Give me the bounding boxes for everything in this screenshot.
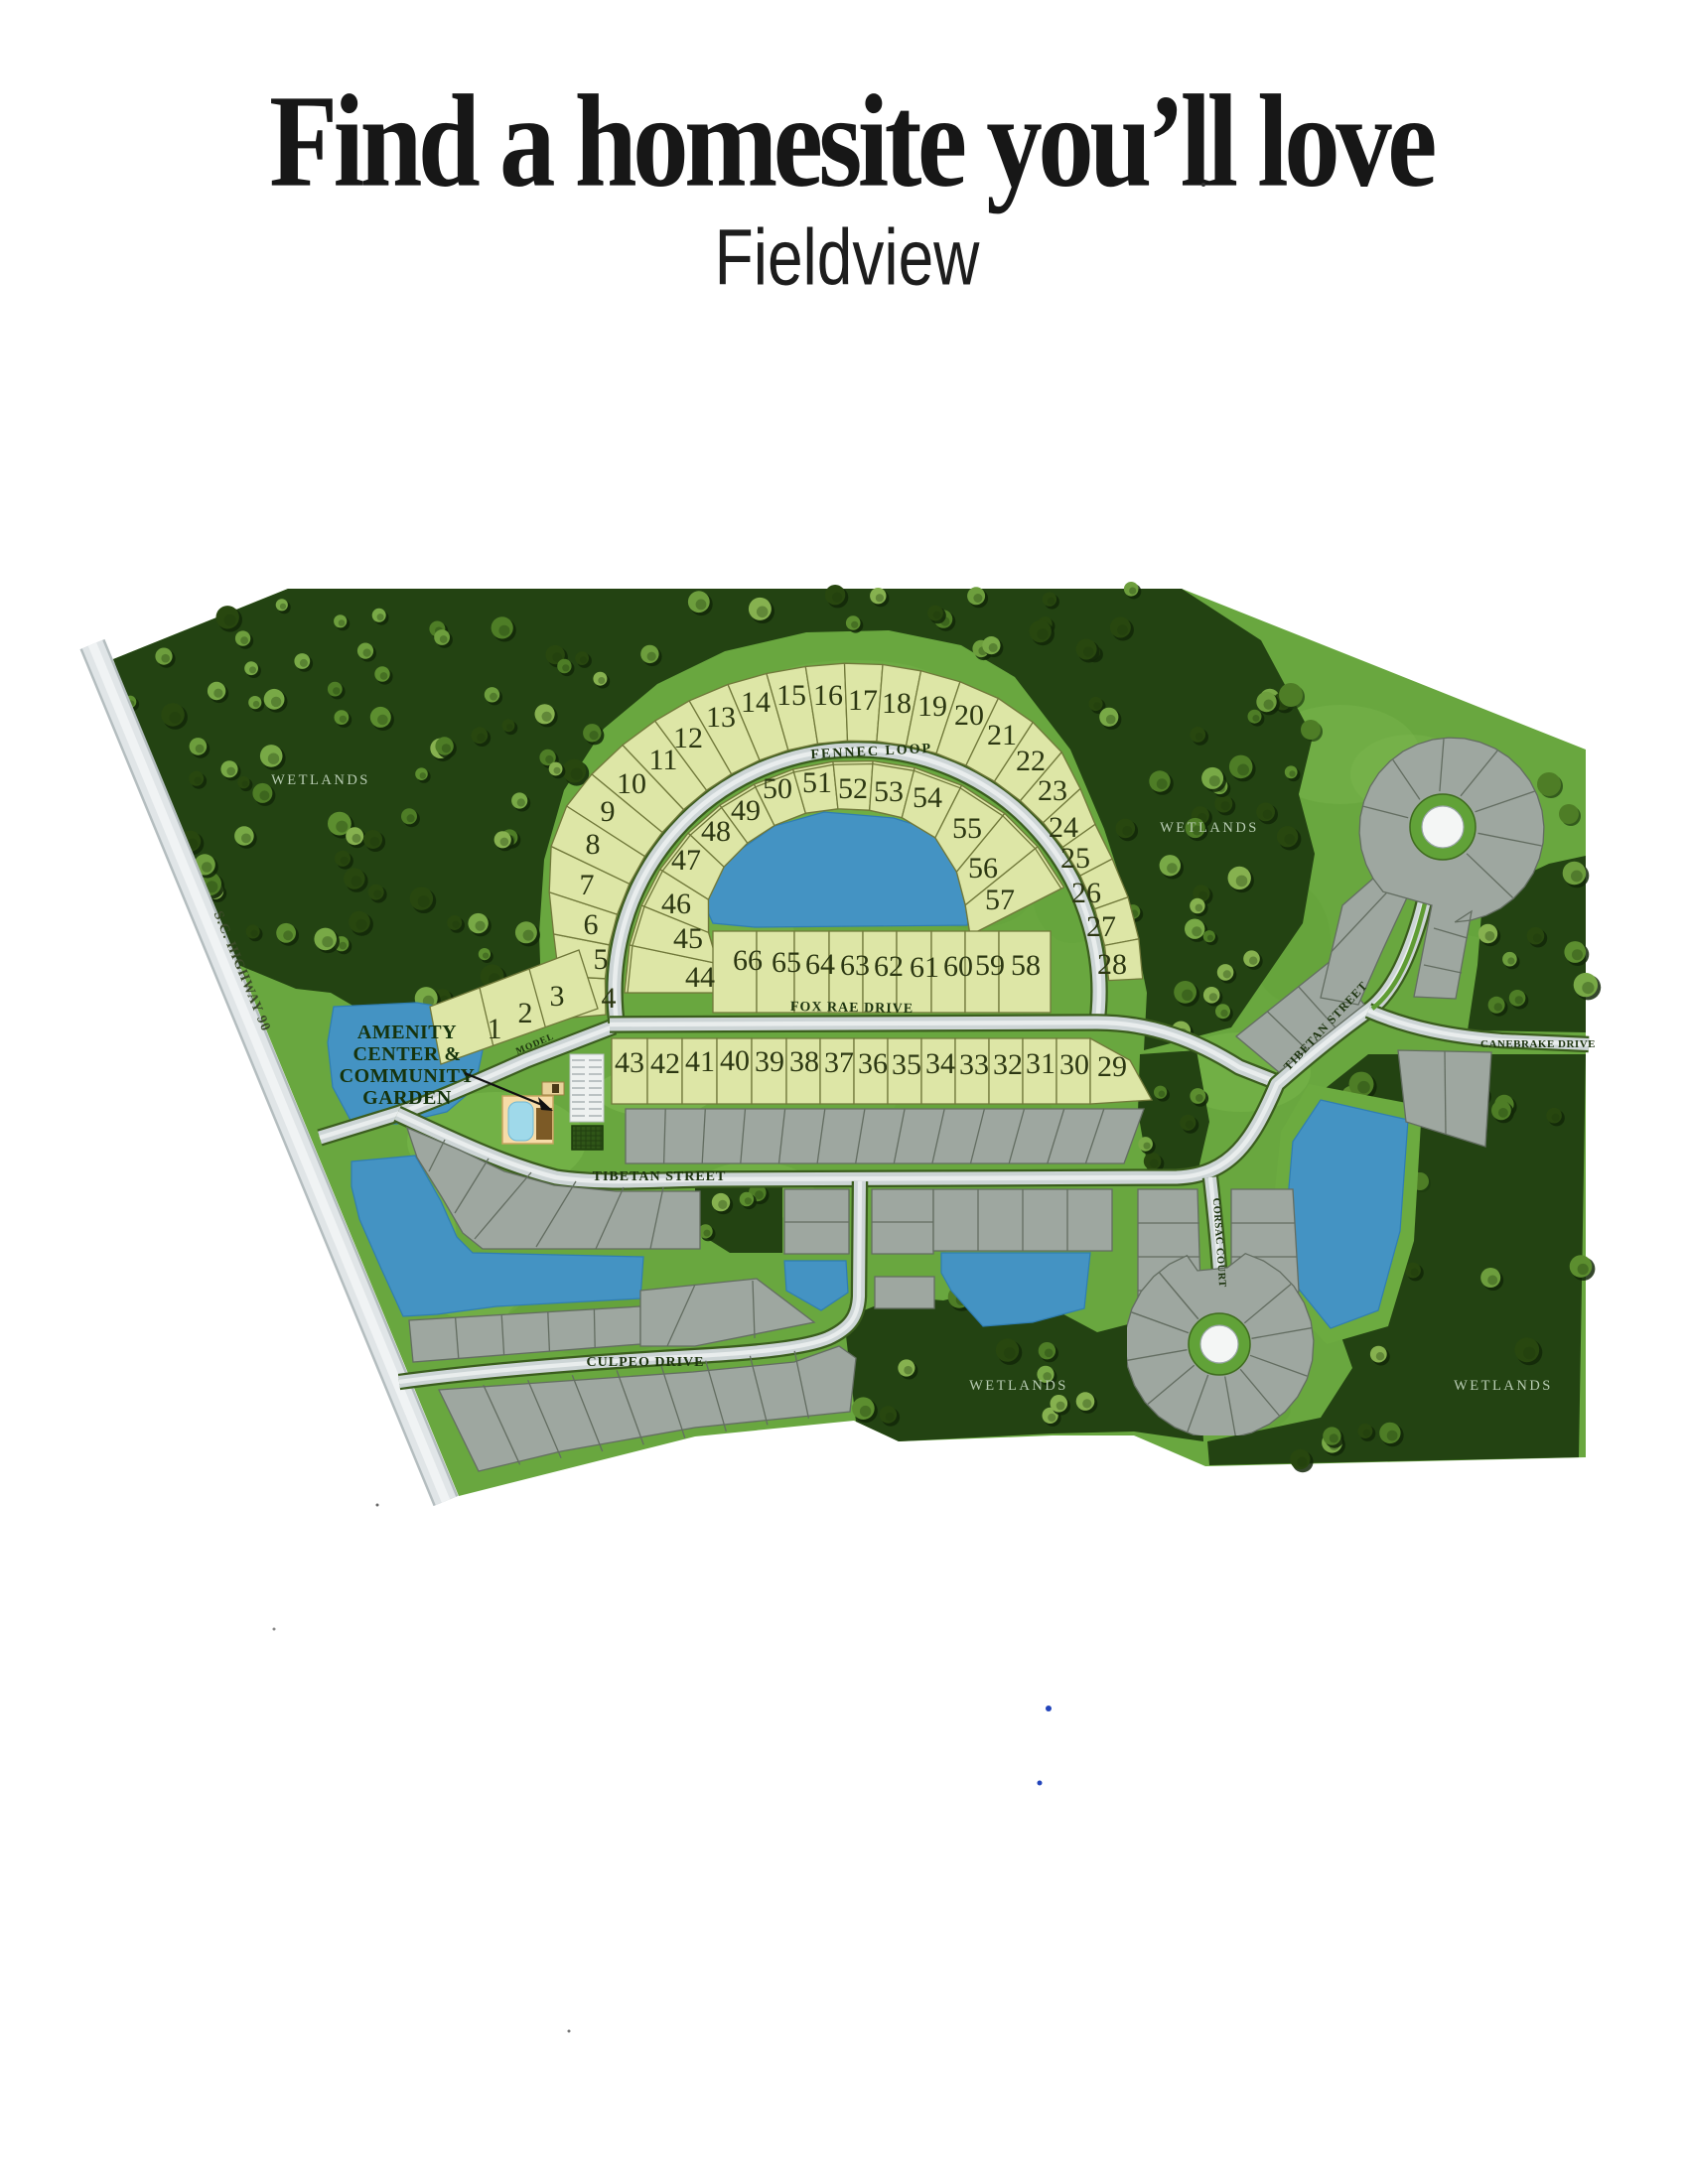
svg-text:54: 54 bbox=[913, 781, 942, 814]
svg-text:50: 50 bbox=[763, 772, 792, 805]
svg-text:51: 51 bbox=[802, 766, 832, 799]
svg-text:40: 40 bbox=[720, 1044, 750, 1077]
svg-text:64: 64 bbox=[805, 948, 835, 981]
svg-text:17: 17 bbox=[848, 684, 878, 717]
svg-text:WETLANDS: WETLANDS bbox=[1454, 1378, 1553, 1394]
svg-text:53: 53 bbox=[874, 775, 904, 808]
svg-text:33: 33 bbox=[959, 1048, 989, 1081]
svg-text:14: 14 bbox=[741, 686, 771, 719]
svg-text:9: 9 bbox=[601, 795, 616, 828]
svg-text:60: 60 bbox=[943, 950, 973, 983]
svg-text:52: 52 bbox=[838, 772, 868, 805]
svg-text:18: 18 bbox=[882, 687, 912, 720]
svg-text:32: 32 bbox=[993, 1048, 1023, 1081]
svg-text:19: 19 bbox=[917, 690, 947, 723]
svg-text:46: 46 bbox=[661, 887, 691, 920]
svg-text:20: 20 bbox=[954, 699, 984, 732]
svg-text:26: 26 bbox=[1071, 877, 1101, 909]
svg-text:66: 66 bbox=[733, 944, 763, 977]
svg-text:37: 37 bbox=[824, 1046, 854, 1079]
svg-text:55: 55 bbox=[952, 812, 982, 845]
svg-text:AMENITY: AMENITY bbox=[357, 1022, 457, 1043]
svg-text:47: 47 bbox=[671, 844, 701, 877]
svg-text:44: 44 bbox=[685, 961, 715, 994]
svg-text:43: 43 bbox=[615, 1046, 644, 1079]
svg-text:1: 1 bbox=[488, 1013, 502, 1045]
svg-text:28: 28 bbox=[1097, 948, 1127, 981]
svg-text:21: 21 bbox=[987, 719, 1017, 751]
svg-text:WETLANDS: WETLANDS bbox=[969, 1378, 1068, 1394]
svg-text:2: 2 bbox=[518, 997, 533, 1029]
svg-text:5: 5 bbox=[594, 943, 609, 976]
svg-text:GARDEN: GARDEN bbox=[362, 1087, 452, 1109]
svg-text:16: 16 bbox=[813, 679, 843, 712]
svg-text:23: 23 bbox=[1038, 774, 1067, 807]
svg-text:24: 24 bbox=[1049, 811, 1078, 844]
svg-text:30: 30 bbox=[1059, 1048, 1089, 1081]
svg-text:49: 49 bbox=[731, 794, 761, 827]
svg-text:41: 41 bbox=[685, 1045, 715, 1078]
svg-text:65: 65 bbox=[772, 946, 801, 979]
svg-text:63: 63 bbox=[840, 949, 870, 982]
svg-text:4: 4 bbox=[602, 982, 617, 1015]
svg-text:TIBETAN STREET: TIBETAN STREET bbox=[593, 1169, 727, 1184]
svg-text:58: 58 bbox=[1011, 949, 1041, 982]
svg-text:39: 39 bbox=[755, 1045, 784, 1078]
svg-text:10: 10 bbox=[617, 767, 646, 800]
svg-text:62: 62 bbox=[874, 950, 904, 983]
svg-text:48: 48 bbox=[701, 815, 731, 848]
svg-text:31: 31 bbox=[1026, 1047, 1055, 1080]
svg-text:59: 59 bbox=[975, 949, 1005, 982]
svg-text:15: 15 bbox=[776, 679, 806, 712]
svg-text:COMMUNITY: COMMUNITY bbox=[340, 1065, 476, 1087]
svg-text:7: 7 bbox=[580, 869, 595, 901]
svg-text:38: 38 bbox=[789, 1045, 819, 1078]
svg-text:57: 57 bbox=[985, 884, 1015, 916]
svg-text:WETLANDS: WETLANDS bbox=[1160, 820, 1259, 836]
svg-text:61: 61 bbox=[910, 951, 939, 984]
svg-text:36: 36 bbox=[858, 1047, 888, 1080]
svg-text:45: 45 bbox=[673, 922, 703, 955]
svg-text:6: 6 bbox=[584, 908, 599, 941]
svg-text:FOX RAE DRIVE: FOX RAE DRIVE bbox=[790, 1000, 914, 1017]
svg-text:CANEBRAKE DRIVE: CANEBRAKE DRIVE bbox=[1480, 1038, 1596, 1050]
svg-text:12: 12 bbox=[673, 722, 703, 754]
svg-text:WETLANDS: WETLANDS bbox=[271, 772, 370, 788]
svg-text:13: 13 bbox=[706, 701, 736, 734]
svg-text:56: 56 bbox=[968, 852, 998, 885]
svg-text:34: 34 bbox=[925, 1047, 955, 1080]
svg-text:27: 27 bbox=[1086, 910, 1116, 943]
svg-text:29: 29 bbox=[1097, 1050, 1127, 1083]
svg-text:25: 25 bbox=[1060, 842, 1090, 875]
svg-text:CENTER &: CENTER & bbox=[352, 1043, 461, 1065]
svg-text:CULPEO DRIVE: CULPEO DRIVE bbox=[587, 1355, 705, 1370]
svg-text:22: 22 bbox=[1016, 745, 1046, 777]
svg-text:8: 8 bbox=[586, 828, 601, 861]
svg-text:3: 3 bbox=[550, 980, 565, 1013]
svg-text:35: 35 bbox=[892, 1048, 921, 1081]
svg-text:42: 42 bbox=[650, 1047, 680, 1080]
